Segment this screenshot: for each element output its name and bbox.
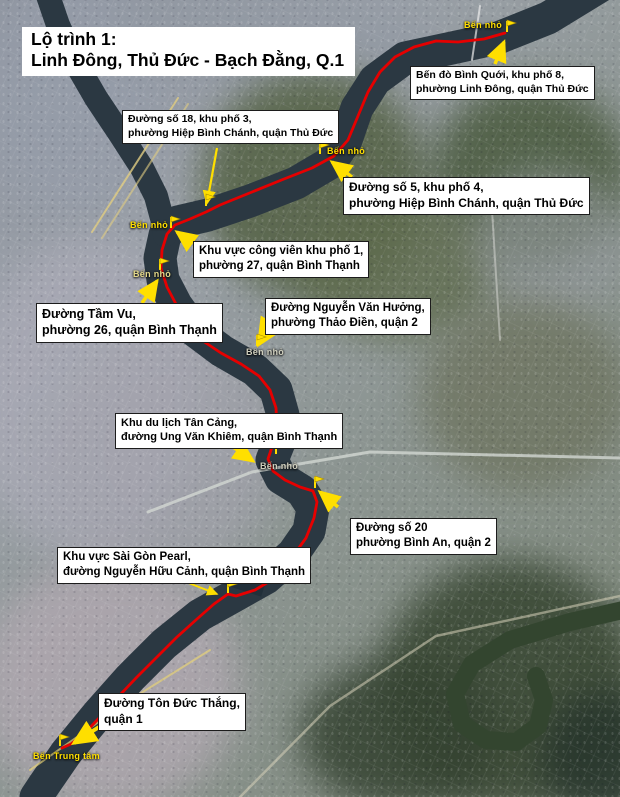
callout-duong-so-5: Đường số 5, khu phố 4, phường Hiệp Bình … [343,177,590,215]
route-title-line1: Lộ trình 1: [31,29,344,50]
satellite-route-map: Bến nhỏ Bến nhỏ Bến nhỏ Bến nhỏ Bến nhỏ … [0,0,620,797]
route-title-line2: Linh Đông, Thủ Đức - Bạch Đằng, Q.1 [31,50,344,71]
callout-text: Đường số 20 [356,521,491,536]
callout-text: phường Thảo Điền, quận 2 [271,316,425,331]
callout-text: phường 27, quận Bình Thạnh [199,259,363,274]
poi-label-ben-nho-2: Bến nhỏ [327,146,365,156]
callout-duong-so-18: Đường số 18, khu phố 3, phường Hiệp Bình… [122,110,339,144]
river-meander [455,608,620,742]
callout-duong-so-20: Đường số 20 phường Bình An, quận 2 [350,518,497,555]
callout-text: Đường Tầm Vu, [42,306,217,322]
poi-label-ben-nho-4: Bến nhỏ [133,269,171,279]
callout-text: phường 26, quận Bình Thạnh [42,322,217,338]
callout-cong-vien-kp1: Khu vực công viên khu phố 1, phường 27, … [193,241,369,278]
callout-text: phường Hiệp Bình Chánh, quận Thủ Đức [128,127,333,141]
callout-tam-vu: Đường Tầm Vu, phường 26, quận Bình Thạnh [36,303,223,343]
callout-ton-duc-thang: Đường Tôn Đức Thắng, quận 1 [98,693,246,731]
callout-text: Khu vực công viên khu phố 1, [199,244,363,259]
callout-tan-cang: Khu du lịch Tân Cảng, đường Ung Văn Khiê… [115,413,343,449]
callout-text: quận 1 [104,712,240,728]
poi-label-ben-nho-3: Bến nhỏ [130,220,168,230]
callout-sai-gon-pearl: Khu vực Sài Gòn Pearl, đường Nguyễn Hữu … [57,547,311,584]
callout-text: Đường Tôn Đức Thắng, [104,696,240,712]
callout-text: Đường số 5, khu phố 4, [349,180,584,196]
callout-text: đường Ung Văn Khiêm, quận Bình Thạnh [121,430,337,444]
poi-label-ben-trung-tam: Bến Trung tâm [33,751,100,761]
road-saigon-bridge-highway [148,452,620,512]
callout-text: Đường Nguyễn Văn Hưởng, [271,301,425,316]
callout-text: Bến đò Bình Quới, khu phố 8, [416,69,589,83]
callout-text: đường Nguyễn Hữu Cảnh, quận Bình Thạnh [63,565,305,580]
poi-label-ben-nho-1: Bến nhỏ [464,20,502,30]
callout-text: Khu vực Sài Gòn Pearl, [63,550,305,565]
poi-label-ben-nho-6: Bến nhỏ [260,461,298,471]
callout-nguyen-van-huong: Đường Nguyễn Văn Hưởng, phường Thảo Điền… [265,298,431,335]
callout-ben-do-binh-quoi: Bến đò Bình Quới, khu phố 8, phường Linh… [410,66,595,100]
callout-text: phường Linh Đông, quận Thủ Đức [416,83,589,97]
callout-text: phường Hiệp Bình Chánh, quận Thủ Đức [349,196,584,212]
callout-text: Khu du lịch Tân Cảng, [121,416,337,430]
route-title: Lộ trình 1: Linh Đông, Thủ Đức - Bạch Đằ… [22,27,355,76]
road-thao-dien [492,210,500,340]
arrow-tan-cang [233,447,253,461]
poi-label-ben-nho-5: Bến nhỏ [246,347,284,357]
callout-text: phường Bình An, quận 2 [356,536,491,551]
callout-text: Đường số 18, khu phố 3, [128,113,333,127]
